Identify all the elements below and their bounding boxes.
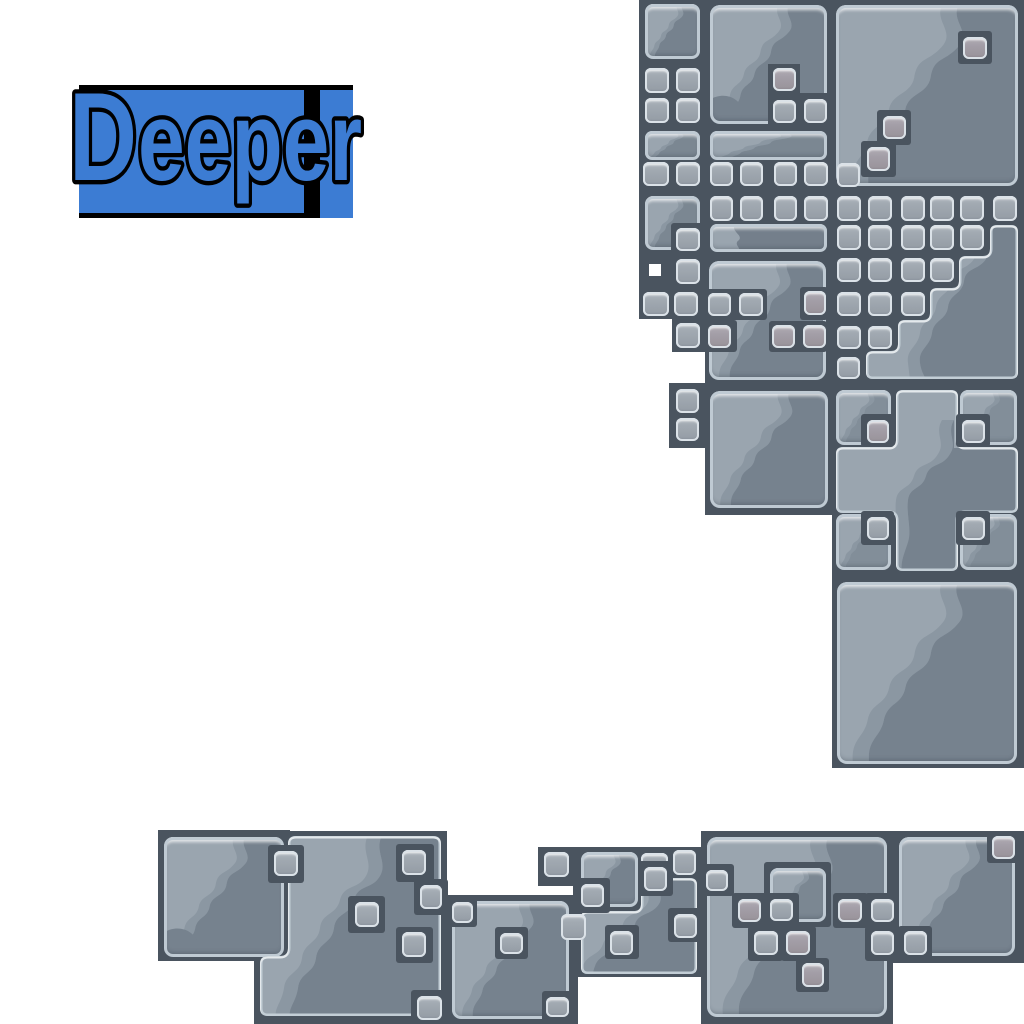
svg-text:eeper: eeper [138, 78, 362, 204]
svg-text:D: D [69, 70, 137, 207]
